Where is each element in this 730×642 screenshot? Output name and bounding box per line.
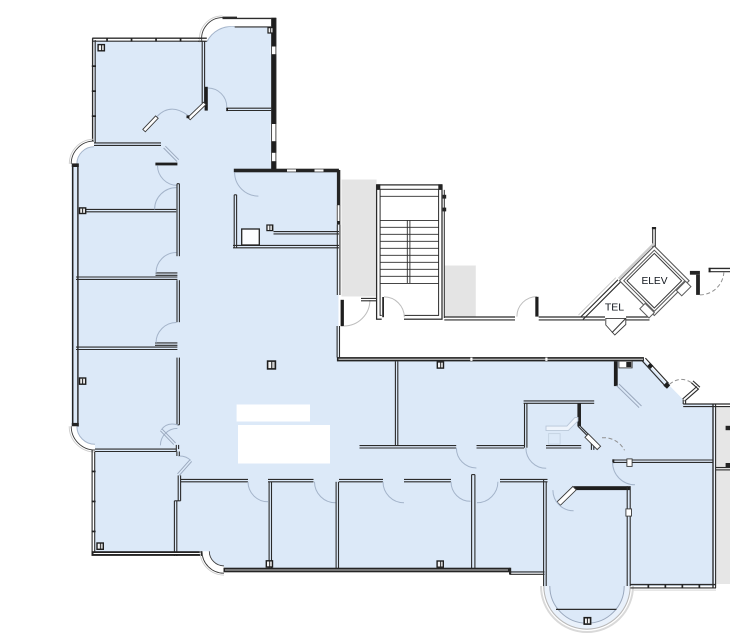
svg-text:ELEV: ELEV xyxy=(641,276,667,287)
svg-text:TEL: TEL xyxy=(605,302,624,314)
